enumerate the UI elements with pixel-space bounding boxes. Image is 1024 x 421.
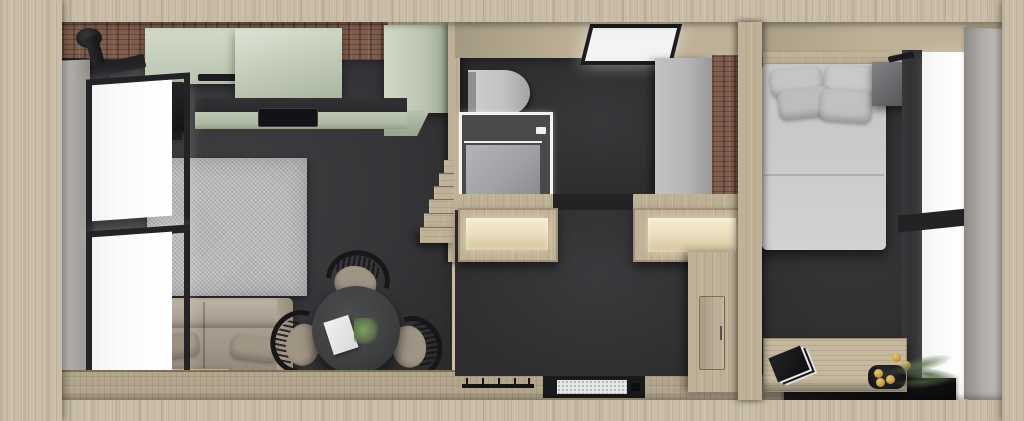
stairs xyxy=(420,160,454,242)
floorplan-render xyxy=(0,0,1024,421)
upper-cabinet-right xyxy=(235,28,342,98)
stair-step xyxy=(424,213,454,228)
wall-between-hall-bedroom xyxy=(738,22,762,400)
window-glass xyxy=(92,232,172,382)
shower-control xyxy=(536,127,546,134)
outer-wall-left xyxy=(0,0,62,421)
window-upper xyxy=(86,72,190,239)
coat-hook-rail xyxy=(462,384,534,388)
bed-pillow-4 xyxy=(819,88,873,124)
candle-icon xyxy=(876,378,885,387)
sofa-seat-divider xyxy=(203,302,205,376)
bathroom-cabinet xyxy=(655,58,712,194)
hook-icon xyxy=(482,378,484,385)
hook-icon xyxy=(498,378,500,385)
window-glass xyxy=(92,80,172,222)
shower-glass-line xyxy=(464,141,542,143)
stair-step xyxy=(444,160,454,173)
hook-icon xyxy=(528,378,530,385)
toilet xyxy=(468,70,530,116)
hook-icon xyxy=(466,378,468,385)
outer-wall-right xyxy=(1002,0,1024,421)
toilet-tank xyxy=(468,72,476,114)
door-latch-icon xyxy=(631,383,640,391)
dining-table xyxy=(312,286,400,374)
bedroom xyxy=(740,22,1005,400)
bed xyxy=(762,64,886,250)
plant-frond xyxy=(894,374,953,390)
stair-step xyxy=(420,227,454,243)
bedroom-curtain xyxy=(964,27,1004,400)
table-plant-icon xyxy=(354,318,378,344)
bench-left-glow xyxy=(466,218,548,250)
bathroom-door-gap xyxy=(553,194,633,210)
bench-right-glow xyxy=(648,218,736,252)
door-handle-icon xyxy=(720,326,722,340)
bathroom xyxy=(455,22,740,202)
bathroom-brick-wall xyxy=(712,55,738,202)
outer-wall-bottom xyxy=(0,400,1024,421)
living-room xyxy=(62,22,452,400)
bedroom-plant-icon xyxy=(888,340,964,398)
shower xyxy=(459,112,553,206)
magazine-stack xyxy=(768,346,809,383)
cooktop xyxy=(258,108,318,127)
outer-wall-top xyxy=(0,0,1024,22)
entry-mat-surface xyxy=(557,380,627,394)
stair-step xyxy=(439,173,454,187)
shower-tray xyxy=(466,145,540,195)
duvet-fold-line xyxy=(764,174,884,176)
hallway xyxy=(455,200,740,400)
stair-step xyxy=(434,186,454,200)
bench-left xyxy=(458,208,558,262)
candle-icon xyxy=(874,369,883,378)
hook-icon xyxy=(514,378,516,385)
sideboard xyxy=(763,338,907,392)
entry-mat xyxy=(543,376,645,398)
stair-step xyxy=(429,199,454,214)
bedroom-partition xyxy=(688,252,740,392)
